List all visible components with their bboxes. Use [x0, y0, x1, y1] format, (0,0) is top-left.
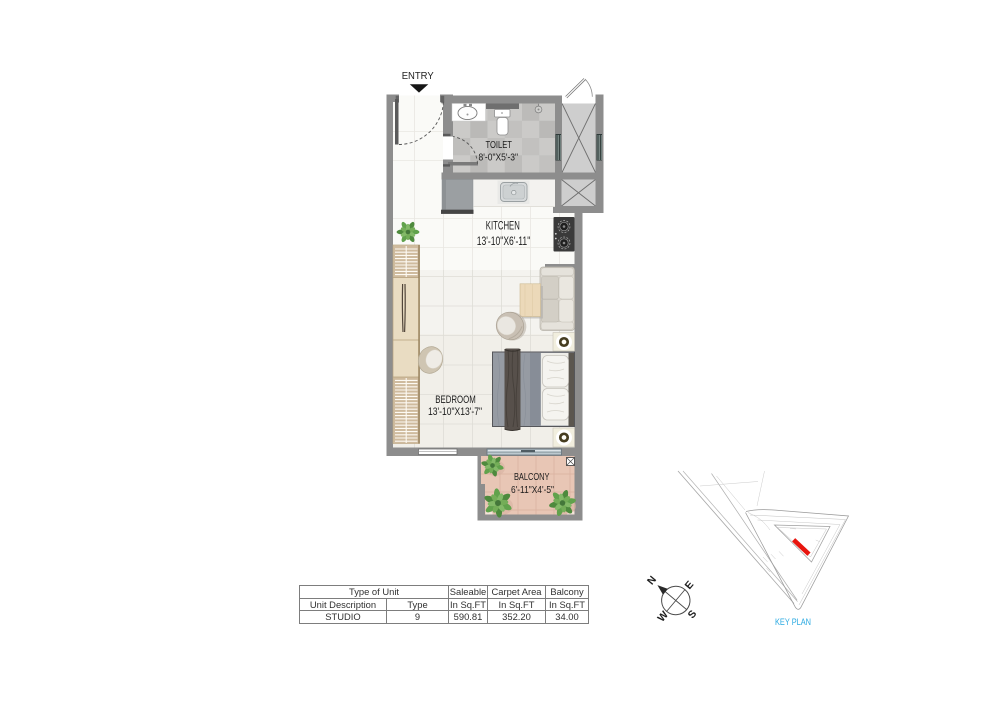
- svg-text:BEDROOM: BEDROOM: [435, 394, 476, 406]
- svg-text:BALCONY: BALCONY: [514, 471, 550, 483]
- svg-text:8'-0"X5'-3": 8'-0"X5'-3": [479, 152, 519, 164]
- svg-text:TOILET: TOILET: [485, 139, 512, 151]
- svg-text:13'-10"X6'-11": 13'-10"X6'-11": [477, 236, 531, 248]
- svg-text:S: S: [686, 608, 700, 621]
- svg-text:N: N: [645, 574, 659, 588]
- svg-text:KEY PLAN: KEY PLAN: [775, 617, 811, 628]
- svg-text:6'-11"X4'-5": 6'-11"X4'-5": [511, 484, 554, 496]
- svg-text:ENTRY: ENTRY: [402, 71, 434, 82]
- svg-text:KITCHEN: KITCHEN: [486, 221, 520, 233]
- svg-text:13'-10"X13'-7": 13'-10"X13'-7": [428, 406, 482, 418]
- svg-text:W: W: [655, 609, 671, 624]
